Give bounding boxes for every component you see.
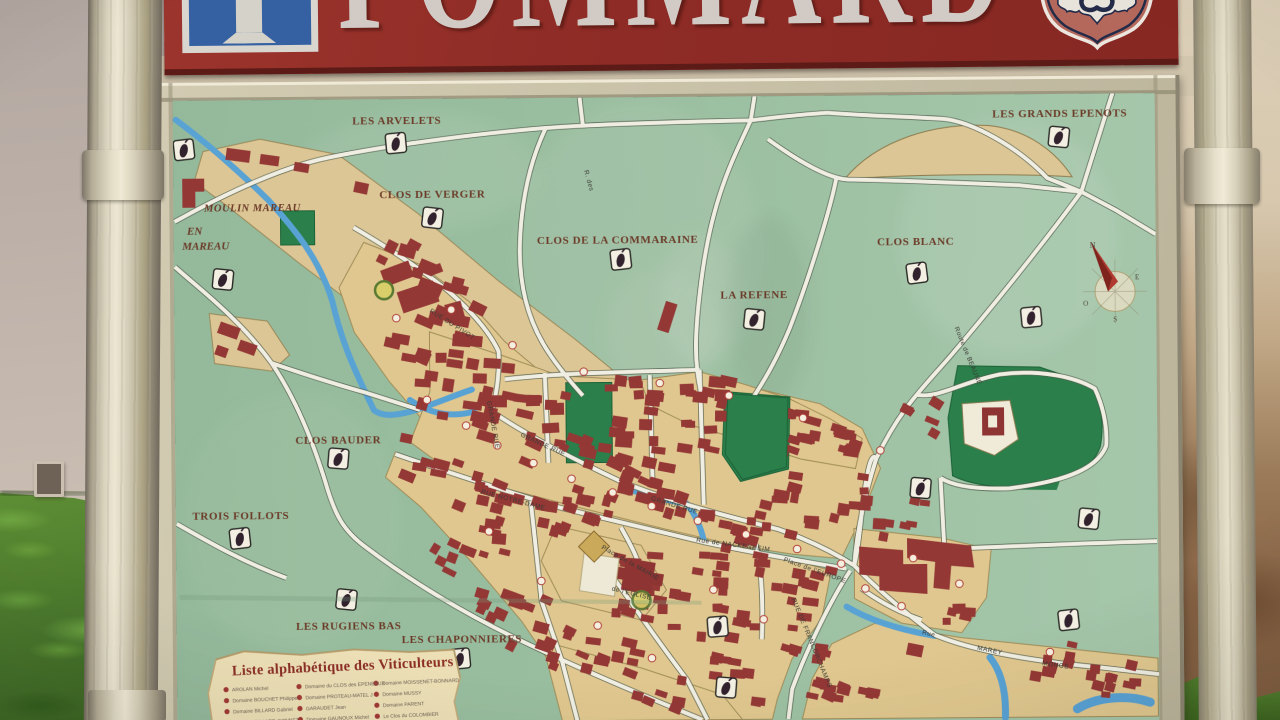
svg-text:Rue: Rue [921, 629, 936, 639]
svg-text:LES GRANDS EPENOTS: LES GRANDS EPENOTS [992, 107, 1127, 120]
svg-text:LES RUGIENS BAS: LES RUGIENS BAS [296, 620, 401, 633]
svg-text:N: N [1090, 241, 1096, 250]
svg-text:S: S [1113, 315, 1117, 323]
svg-text:MONGE: MONGE [1042, 660, 1070, 671]
svg-text:Domaine GAUNOUX Michel: Domaine GAUNOUX Michel [306, 715, 369, 720]
svg-text:LES CHAPONNIERES: LES CHAPONNIERES [402, 633, 522, 646]
svg-text:Liste alphabétique des Viticul: Liste alphabétique des Viticulteurs [232, 654, 454, 679]
svg-text:MOULIN MAREAU: MOULIN MAREAU [203, 203, 302, 215]
svg-text:Route de BEAUNE: Route de BEAUNE [953, 326, 983, 387]
svg-text:de l'EGLISE: de l'EGLISE [611, 586, 652, 602]
svg-text:MAREAU: MAREAU [181, 240, 230, 252]
svg-text:R. des: R. des [582, 169, 595, 192]
svg-text:Domaine du CLOS des EPENEAUX: Domaine du CLOS des EPENEAUX [305, 681, 386, 690]
svg-text:GARAUDET Jean: GARAUDET Jean [306, 705, 346, 713]
svg-text:RUE DU PIVOT: RUE DU PIVOT [428, 308, 476, 342]
svg-text:RUE NOTRE-DAME: RUE NOTRE-DAME [480, 489, 546, 512]
svg-text:CLOS DE VERGER: CLOS DE VERGER [379, 188, 486, 201]
svg-text:CLOS DE LA COMMARAINE: CLOS DE LA COMMARAINE [537, 234, 699, 247]
svg-text:Place de la MAIRIE: Place de la MAIRIE [600, 544, 660, 582]
svg-text:Place de l'EUROPE: Place de l'EUROPE [783, 556, 847, 585]
svg-text:TROIS FOLLOTS: TROIS FOLLOTS [192, 510, 289, 523]
svg-text:Domaine MUSSY: Domaine MUSSY [382, 690, 422, 698]
svg-text:GRANDE RUE: GRANDE RUE [650, 495, 698, 516]
svg-text:LES ARVELETS: LES ARVELETS [352, 115, 441, 128]
svg-text:CLOS BAUDER: CLOS BAUDER [295, 434, 381, 447]
svg-text:Le Clos du COLOMBIER: Le Clos du COLOMBIER [383, 712, 439, 720]
svg-text:CLOS BLANC: CLOS BLANC [877, 236, 954, 249]
svg-text:O: O [1083, 300, 1088, 308]
svg-text:GRANDE RUE: GRANDE RUE [485, 401, 501, 450]
svg-text:E: E [1135, 273, 1139, 281]
svg-text:LA REFENE: LA REFENE [720, 289, 788, 302]
svg-text:Rue de NACKENHEIM: Rue de NACKENHEIM [696, 537, 771, 554]
svg-text:EN: EN [186, 226, 203, 238]
svg-text:MAREY: MAREY [976, 645, 1003, 657]
svg-text:Domaine PROTEAU-MATEL J: Domaine PROTEAU-MATEL J [305, 692, 373, 701]
svg-text:Domaine BOUCHET Philippe: Domaine BOUCHET Philippe [232, 696, 297, 705]
svg-text:Domaine PARENT: Domaine PARENT [383, 701, 425, 709]
svg-text:Domaine BILLARD Gabriel: Domaine BILLARD Gabriel [233, 707, 293, 716]
svg-text:GRANDE RUE: GRANDE RUE [519, 432, 566, 459]
svg-text:Domaine MOISSENET-BONNARD: Domaine MOISSENET-BONNARD [382, 678, 460, 687]
svg-text:RUE DE FRANCORCHAMPS: RUE DE FRANCORCHAMPS [790, 597, 833, 689]
svg-text:AROLAN Michel: AROLAN Michel [232, 686, 269, 694]
